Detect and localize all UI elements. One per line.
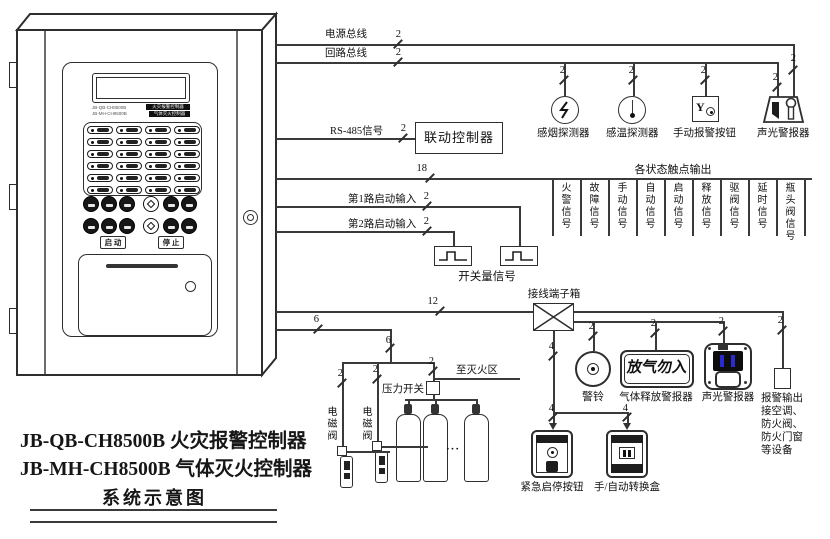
led-indicator bbox=[116, 186, 142, 194]
alarm-output-text-1: 报警输出 bbox=[761, 393, 803, 405]
solenoid-connector bbox=[372, 441, 382, 451]
led-indicator bbox=[145, 150, 171, 158]
system-title-line2: JB-MH-CH8500B 气体灭火控制器 bbox=[20, 452, 312, 481]
wire-count: 2 bbox=[385, 30, 401, 41]
led-indicator bbox=[145, 138, 171, 146]
wire-count: 4 bbox=[612, 404, 628, 415]
status-wire bbox=[804, 178, 806, 236]
pulse-icon bbox=[500, 246, 538, 266]
input2-label: 第2路启动输入 bbox=[348, 219, 416, 231]
terminal-box-x bbox=[533, 303, 574, 331]
solenoid-tag bbox=[344, 473, 350, 479]
status-signal-label: 手动信号 bbox=[615, 182, 625, 230]
wire-count: 2 bbox=[780, 54, 796, 65]
status-signal-label: 故障信号 bbox=[587, 182, 597, 230]
manual-call-point-glyph: Y bbox=[696, 101, 705, 115]
emergency-top-band bbox=[536, 435, 568, 443]
sl2-screw bbox=[744, 347, 747, 350]
status-wire bbox=[636, 178, 638, 236]
led-indicator bbox=[116, 126, 142, 134]
alarm-bell-dot bbox=[591, 367, 595, 371]
panel-key[interactable] bbox=[119, 196, 135, 212]
wire-count: 2 bbox=[708, 317, 724, 328]
rs485-label: RS-485信号 bbox=[330, 126, 383, 138]
title-underline bbox=[30, 521, 277, 523]
wire-count: 2 bbox=[767, 316, 783, 327]
solenoid-tag bbox=[344, 461, 350, 470]
to-zone-label: 至灭火区 bbox=[456, 365, 498, 377]
status-signal-label: 释放信号 bbox=[699, 182, 709, 230]
alarm-output-text-5: 等设备 bbox=[761, 445, 793, 457]
panel-model-2: JB-MH-CH8500B bbox=[92, 111, 127, 116]
panel-key-diamond[interactable] bbox=[143, 196, 159, 212]
lcd-screen-inner bbox=[96, 77, 186, 99]
wire-count: 2 bbox=[362, 365, 378, 376]
led-indicator bbox=[174, 150, 200, 158]
manual-call-point-label: 手动报警按钮 bbox=[673, 128, 736, 140]
solenoid-tube bbox=[382, 446, 428, 448]
switch-signal-label: 开关量信号 bbox=[447, 271, 527, 284]
input1-drop bbox=[519, 206, 521, 246]
gas-cylinder bbox=[464, 414, 489, 482]
heat-detector-bulb bbox=[630, 113, 635, 118]
led-indicator bbox=[87, 138, 113, 146]
manual-auto-bar bbox=[623, 450, 626, 457]
pulse-icon bbox=[434, 246, 472, 266]
panel-tag-1: 火灾报警控制器 bbox=[146, 104, 190, 110]
hinge bbox=[9, 62, 17, 88]
lightning-icon bbox=[551, 96, 579, 124]
keyhole-inner bbox=[247, 214, 254, 221]
cylinder-valve bbox=[404, 404, 412, 414]
cylinder-valve bbox=[431, 404, 439, 414]
input1-line bbox=[276, 206, 519, 208]
gas-release-label: 气体释放警报器 bbox=[614, 392, 698, 404]
sl2-screw bbox=[708, 347, 711, 350]
input2-drop bbox=[453, 231, 455, 246]
wire-count: 18 bbox=[411, 164, 427, 175]
linkage-controller-label: 联动控制器 bbox=[415, 131, 503, 146]
wire-count: 2 bbox=[327, 369, 343, 380]
led-indicator bbox=[116, 150, 142, 158]
sl2-screw bbox=[744, 381, 747, 384]
panel-key[interactable] bbox=[181, 196, 197, 212]
wire-count: 2 bbox=[578, 322, 594, 333]
sound-light2-label: 声光警报器 bbox=[701, 392, 755, 404]
solenoid-valve-label: 电磁阀 bbox=[360, 406, 370, 442]
rs485-line bbox=[276, 138, 415, 140]
alarm-output-box bbox=[774, 368, 791, 389]
system-title-line3: 系统示意图 bbox=[102, 484, 207, 510]
led-indicator bbox=[116, 174, 142, 182]
manual-auto-top-band bbox=[611, 435, 643, 443]
power-bus-line bbox=[276, 44, 793, 46]
status-wire bbox=[664, 178, 666, 236]
panel-key-diamond[interactable] bbox=[143, 218, 159, 234]
led-indicator bbox=[116, 138, 142, 146]
wire-count: 2 bbox=[640, 319, 656, 330]
status-output-line bbox=[276, 178, 812, 180]
system-title-line1: JB-QB-CH8500B 火灾报警控制器 bbox=[20, 424, 307, 453]
status-signal-label: 驱阀信号 bbox=[727, 182, 737, 230]
hinge bbox=[9, 308, 17, 334]
panel-tag-2: 气体灭火控制器 bbox=[149, 111, 190, 117]
panel-key[interactable] bbox=[83, 218, 99, 234]
led-indicator bbox=[145, 174, 171, 182]
emergency-push-dot bbox=[551, 451, 554, 454]
status-wire bbox=[776, 178, 778, 236]
manual-auto-bar bbox=[628, 450, 631, 457]
status-wire bbox=[608, 178, 610, 236]
led-indicator bbox=[174, 162, 200, 170]
solenoid-connector bbox=[337, 446, 347, 456]
panel-key[interactable] bbox=[101, 196, 117, 212]
system-schematic: JB-QB-CH8500B JB-MH-CH8500B 火灾报警控制器 气体灭火… bbox=[0, 0, 830, 539]
start-button[interactable]: 启 动 bbox=[100, 236, 126, 249]
panel-key[interactable] bbox=[181, 218, 197, 234]
status-wire bbox=[720, 178, 722, 236]
terminal-box-label: 接线端子箱 bbox=[520, 289, 588, 301]
led-indicator bbox=[87, 186, 113, 194]
wire-count: 4 bbox=[538, 404, 554, 415]
wire-count: 2 bbox=[549, 66, 565, 77]
manual-call-point-dot-core bbox=[710, 111, 713, 114]
solenoid-tag bbox=[379, 456, 385, 465]
solenoid-tag bbox=[379, 468, 385, 474]
status-signal-label: 自动信号 bbox=[643, 182, 653, 230]
emergency-bottom-pad bbox=[546, 461, 558, 472]
status-signal-label: 瓶头阀信号 bbox=[783, 182, 793, 242]
led-indicator bbox=[174, 174, 200, 182]
gas-cylinder bbox=[396, 414, 421, 482]
status-wire bbox=[748, 178, 750, 236]
wire-count: 6 bbox=[375, 336, 391, 347]
status-signal-label: 启动信号 bbox=[671, 182, 681, 230]
loop-bus-label: 回路总线 bbox=[325, 48, 367, 60]
led-indicator bbox=[87, 174, 113, 182]
arrow-down-icon bbox=[623, 423, 631, 430]
sl2-strobe-bar bbox=[720, 355, 724, 367]
status-wire bbox=[692, 178, 694, 236]
smoke-detector-label: 感烟探测器 bbox=[537, 128, 590, 140]
bell-label: 警铃 bbox=[582, 391, 604, 404]
wire-count: 2 bbox=[413, 217, 429, 228]
panel-key[interactable] bbox=[101, 218, 117, 234]
led-indicator bbox=[145, 186, 171, 194]
door-button[interactable] bbox=[185, 281, 196, 292]
suppression-line bbox=[276, 329, 390, 331]
wire-count: 2 bbox=[418, 357, 434, 368]
gas-release-sign-text: 放气勿入 bbox=[623, 360, 691, 377]
printer-slot bbox=[106, 264, 178, 268]
power-bus-label: 电源总线 bbox=[325, 29, 367, 41]
led-indicator bbox=[87, 150, 113, 158]
led-indicator bbox=[87, 162, 113, 170]
led-indicator bbox=[87, 126, 113, 134]
panel-key[interactable] bbox=[163, 196, 179, 212]
sl2-stem bbox=[718, 344, 728, 350]
panel-key[interactable] bbox=[163, 218, 179, 234]
alarm-output-text-3: 防火阀、 bbox=[761, 419, 803, 431]
wire-count: 2 bbox=[413, 192, 429, 203]
sl2-speaker bbox=[715, 371, 741, 388]
alarm-output-text-2: 接空调、 bbox=[761, 406, 803, 418]
manual-auto-bottom-band bbox=[611, 464, 643, 473]
cylinder-valve bbox=[472, 404, 480, 414]
sound-light-alarm-icon bbox=[762, 93, 805, 124]
sl2-screw bbox=[708, 381, 711, 384]
alarm-output-text-4: 防火门窗 bbox=[761, 432, 803, 444]
arrow-down-icon bbox=[549, 423, 557, 430]
status-header: 各状态触点输出 bbox=[628, 164, 718, 177]
pressure-switch-label: 压力开关 bbox=[382, 384, 424, 396]
manual-auto-switch[interactable] bbox=[619, 447, 635, 459]
led-indicator bbox=[116, 162, 142, 170]
panel-key[interactable] bbox=[83, 196, 99, 212]
terminal-line bbox=[276, 311, 533, 313]
manual-auto-label: 手/自动转换盒 bbox=[579, 482, 675, 494]
led-indicator bbox=[145, 162, 171, 170]
input1-label: 第1路启动输入 bbox=[348, 194, 416, 206]
wire-count: 4 bbox=[538, 342, 554, 353]
wire-count: 2 bbox=[762, 73, 778, 84]
hinge bbox=[9, 184, 17, 210]
title-underline bbox=[30, 509, 277, 511]
panel-model-1: JB-QB-CH8500B bbox=[92, 105, 126, 110]
wire-count: 12 bbox=[422, 297, 438, 308]
solenoid-tube bbox=[347, 451, 390, 453]
status-wire bbox=[552, 178, 554, 236]
loop-bus-line bbox=[276, 62, 777, 64]
pressure-switch bbox=[426, 381, 440, 395]
wire-count: 2 bbox=[385, 48, 401, 59]
output-upper-line bbox=[574, 311, 782, 313]
sound-light-alarm-label: 声光警报器 bbox=[757, 128, 810, 140]
led-indicator bbox=[174, 138, 200, 146]
led-indicator bbox=[145, 126, 171, 134]
cylinder-dots: ··· bbox=[446, 443, 460, 456]
to-zone-pipe bbox=[433, 378, 520, 380]
cylinder-header bbox=[405, 399, 477, 401]
status-wire bbox=[580, 178, 582, 236]
sl2-strobe-panel bbox=[713, 351, 743, 371]
status-signal-label: 延时信号 bbox=[755, 182, 765, 230]
solenoid-valve-label: 电磁阀 bbox=[325, 406, 335, 442]
led-indicator bbox=[174, 126, 200, 134]
sl2-strobe-bar bbox=[731, 355, 735, 367]
panel-key[interactable] bbox=[119, 218, 135, 234]
gas-cylinder bbox=[423, 414, 448, 482]
wire-count: 2 bbox=[390, 124, 406, 135]
wire-count: 2 bbox=[690, 66, 706, 77]
heat-detector-label: 感温探测器 bbox=[606, 128, 659, 140]
led-indicator bbox=[174, 186, 200, 194]
wire-count: 6 bbox=[303, 315, 319, 326]
wire-count: 2 bbox=[618, 66, 634, 77]
status-signal-label: 火警信号 bbox=[559, 182, 569, 230]
stop-button[interactable]: 停 止 bbox=[158, 236, 184, 249]
